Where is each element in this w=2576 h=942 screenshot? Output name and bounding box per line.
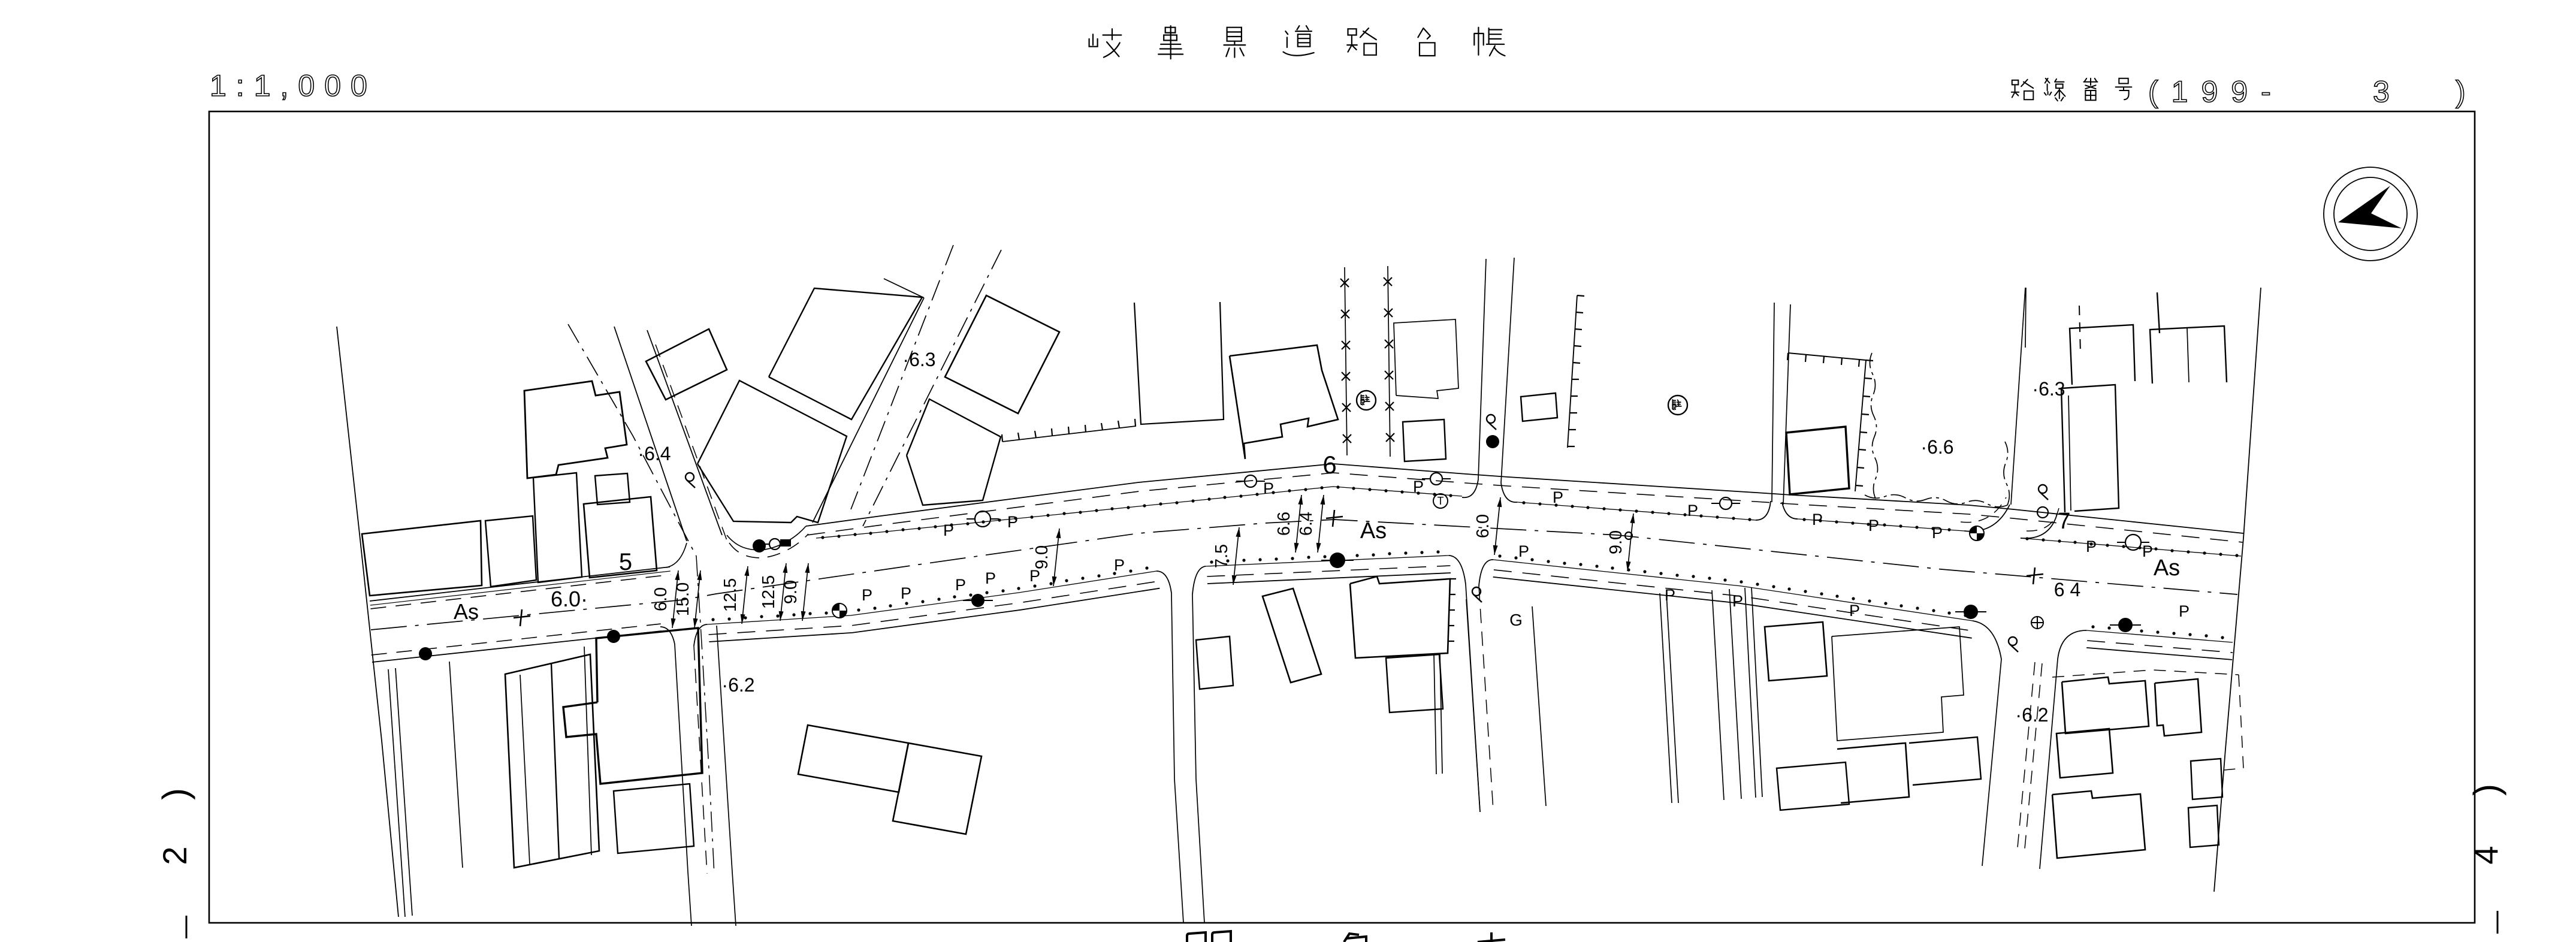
svg-text:7.5: 7.5: [1212, 544, 1231, 568]
svg-text:·6.6: ·6.6: [1920, 436, 1953, 458]
svg-text:T: T: [1438, 495, 1444, 507]
svg-text:P: P: [1553, 488, 1563, 506]
svg-text:12.5: 12.5: [721, 578, 740, 612]
svg-text:7: 7: [2058, 509, 2070, 534]
svg-text:P: P: [1518, 542, 1529, 560]
svg-text:9.0: 9.0: [1032, 545, 1052, 569]
svg-text:9.0: 9.0: [1606, 530, 1626, 554]
svg-text:·6.3: ·6.3: [2032, 378, 2065, 400]
svg-text:4: 4: [2467, 846, 2505, 864]
svg-text:6.4: 6.4: [1297, 512, 1316, 536]
svg-text:·6.4: ·6.4: [638, 443, 671, 464]
svg-text:6: 6: [1322, 451, 1336, 479]
svg-text:6.0: 6.0: [1473, 514, 1493, 538]
svg-text:P: P: [1812, 511, 1823, 529]
svg-text:P: P: [2179, 602, 2190, 620]
svg-text:): ): [155, 788, 195, 800]
svg-text:P: P: [1868, 517, 1879, 535]
svg-text:As: As: [1360, 518, 1387, 544]
svg-text:P: P: [1114, 556, 1125, 574]
svg-text:15.0: 15.0: [674, 582, 693, 616]
svg-text:5: 5: [619, 549, 632, 575]
svg-text:P: P: [955, 576, 966, 594]
svg-text:·6.2: ·6.2: [2015, 704, 2048, 726]
svg-text:P: P: [1007, 513, 1018, 531]
svg-text:P: P: [1849, 602, 1860, 620]
svg-text:G: G: [1509, 611, 1523, 629]
svg-text:2: 2: [156, 846, 194, 865]
svg-text:P: P: [862, 586, 872, 604]
svg-text:P: P: [901, 584, 911, 602]
svg-text:P: P: [1029, 567, 1040, 585]
svg-text:1:1,000: 1:1,000: [210, 69, 377, 102]
svg-text:·6.3: ·6.3: [902, 349, 935, 370]
svg-text:P: P: [2086, 538, 2097, 555]
svg-text:P: P: [1665, 586, 1675, 604]
svg-text:As: As: [2154, 555, 2180, 581]
svg-text:P: P: [1413, 478, 1424, 496]
svg-text:P: P: [1932, 524, 1943, 542]
svg-text:P: P: [1263, 479, 1274, 497]
svg-text:12.5: 12.5: [759, 575, 778, 609]
svg-text:·6.2: ·6.2: [721, 674, 754, 696]
svg-text:P: P: [1687, 502, 1698, 520]
svg-text:6.0·: 6.0·: [551, 587, 588, 611]
svg-text:6 4: 6 4: [2054, 579, 2080, 600]
svg-text:3: 3: [2373, 75, 2390, 108]
svg-text:): ): [2456, 75, 2466, 108]
svg-text:6.6: 6.6: [1275, 512, 1294, 536]
svg-text:P: P: [943, 521, 954, 539]
svg-text:9.0: 9.0: [781, 580, 801, 604]
svg-text:(199-: (199-: [2148, 75, 2284, 108]
svg-text:6.0: 6.0: [651, 587, 671, 611]
svg-text:As: As: [454, 599, 479, 624]
svg-text:): ): [2466, 784, 2506, 796]
svg-text:P: P: [2142, 542, 2153, 560]
svg-text:P: P: [985, 569, 996, 587]
svg-text:P: P: [1732, 592, 1743, 610]
